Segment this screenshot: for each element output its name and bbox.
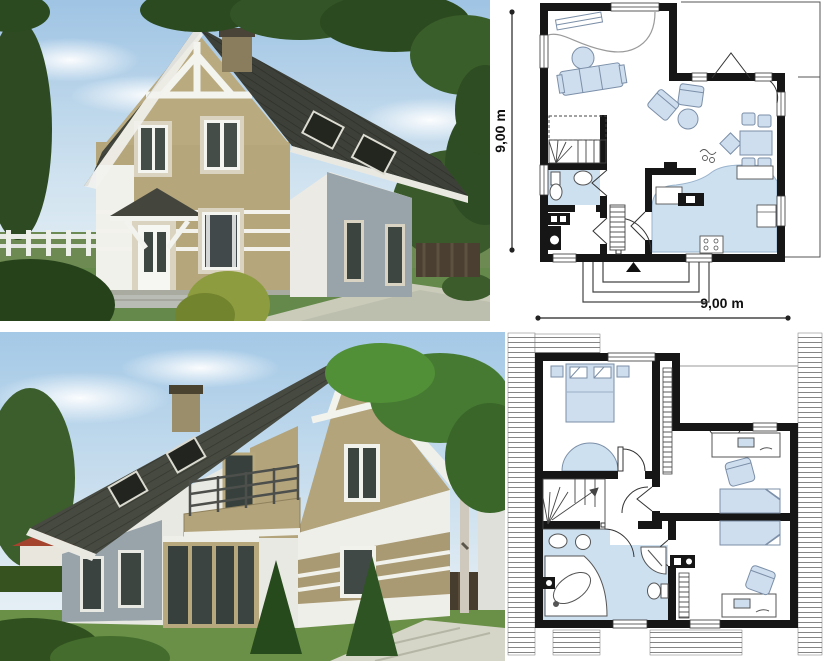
armchair-2	[678, 83, 705, 107]
nightstand-2	[617, 366, 629, 377]
hall-wardrobe	[610, 205, 625, 250]
front-exterior-scene	[0, 0, 490, 321]
coffee-table	[572, 47, 594, 69]
bedroom3-wardrobe	[679, 573, 689, 618]
toilet-bowl	[550, 184, 562, 200]
ground-floor-drawing: 9,00 m 9,00 m	[490, 0, 830, 325]
rear-exterior-photo	[0, 328, 505, 661]
upper-window-left	[134, 121, 172, 177]
toilet-tank	[551, 172, 560, 185]
house-project-collage: 9,00 m 9,00 m	[0, 0, 830, 661]
gable-window	[344, 444, 380, 502]
white-pillar	[478, 503, 505, 618]
washbasin-2	[576, 535, 591, 550]
fridge	[757, 205, 776, 227]
toilet-bowl	[648, 583, 661, 599]
dim-height-label: 9,00 m	[492, 109, 508, 153]
patio-doors	[163, 536, 259, 628]
upper-window-right	[200, 116, 244, 174]
toilet-tank	[661, 584, 668, 598]
attic-floor-drawing	[505, 328, 830, 661]
side-table	[678, 109, 698, 129]
chimney	[219, 28, 255, 72]
office-wardrobe	[663, 368, 672, 474]
front-door	[132, 220, 176, 295]
stove	[700, 236, 723, 253]
front-exterior-photo	[0, 0, 490, 321]
dining-table	[740, 131, 772, 155]
attic-floor-plan	[505, 328, 830, 661]
ground-floor-plan: 9,00 m 9,00 m	[490, 0, 830, 325]
top-margin	[0, 328, 505, 332]
dim-width-label: 9,00 m	[700, 295, 744, 311]
dining-chair-1	[742, 113, 755, 125]
chimney	[169, 385, 203, 432]
dining-chair-2	[758, 115, 771, 127]
nightstand-1	[551, 366, 563, 377]
rear-exterior-scene	[0, 328, 505, 661]
ground-window	[198, 208, 244, 274]
washbasin-1	[549, 534, 567, 548]
washbasin	[574, 171, 592, 185]
